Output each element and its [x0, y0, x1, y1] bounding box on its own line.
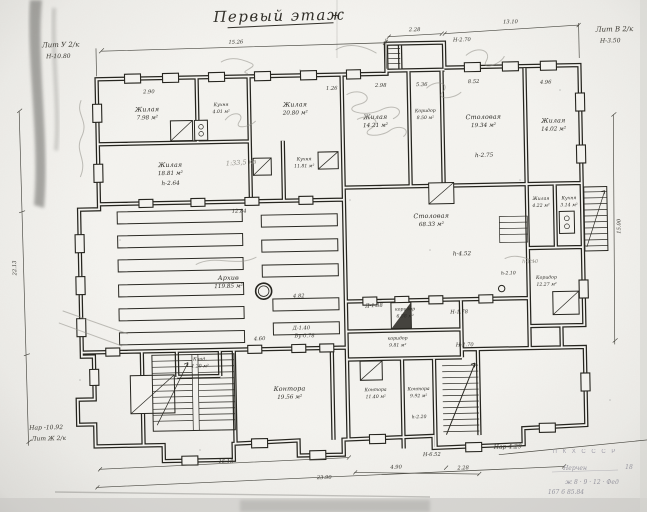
room-area: 8.50 м² [417, 115, 435, 121]
room-note: h-4.52 [453, 251, 472, 257]
room-area: 4.01 м² [211, 109, 230, 115]
dim-bottom-1: 15.18 [218, 459, 234, 465]
room-area: 7.98 м² [137, 114, 159, 121]
dim-bottom-3: 4.90 [389, 465, 402, 471]
dim-annex-width: 2.28 [408, 27, 421, 33]
room-label: Контора [363, 387, 387, 393]
room-note: h-2.20 [412, 414, 427, 420]
room-area: 9.81 м² [389, 342, 407, 348]
room-label: Жилая [282, 101, 307, 108]
room-area: 11.81 м² [294, 163, 315, 169]
dim-d7: 4.60 [253, 336, 266, 342]
label-h-top-right: Н-3.50 [599, 37, 621, 44]
room-area: 3.14 м² [560, 202, 578, 208]
label-nar-bottom-left: Нар -10.92 [28, 424, 63, 432]
room-label: Архив [217, 275, 239, 282]
room-area: 12.27 м² [536, 282, 557, 288]
room-area: 6.88 м² [396, 313, 414, 319]
room-label: Контора [273, 385, 306, 393]
dim-left-vertical: 22.13 [12, 260, 18, 277]
label-h-top-left: Н-10.80 [45, 53, 71, 60]
dim-d9: 4.82 [292, 293, 305, 299]
room-label: Кухня [213, 102, 229, 108]
dim-top-right: 13.10 [503, 19, 519, 25]
label-lit-bottom-left: Лит Ж 2/к [30, 435, 66, 443]
label-lit-top-left: Лит У 2/к [41, 41, 80, 50]
room-label: Кухня [296, 156, 312, 162]
room-note: h-2.64 [161, 181, 180, 187]
dim-d12: Д-1.40 [292, 325, 311, 331]
room-label: Жилая [540, 117, 565, 124]
dim-mid-height: Н-2.70 [455, 342, 475, 348]
dim-d5: 4.96 [539, 80, 552, 86]
room-label: Коридор [535, 275, 557, 281]
room-label: Клад. [192, 356, 207, 362]
room-area: 11.40 м² [366, 394, 387, 400]
stamp-number: 18 [625, 464, 633, 471]
dim-d3: 5.36 [416, 82, 428, 88]
room-label: коридор [395, 306, 415, 312]
dim-bottom-2: 23.90 [316, 475, 333, 481]
stamp-org: П К Х С С С Р [553, 449, 618, 455]
dim-annex-height: Н-2.70 [452, 37, 472, 43]
room-area: 19.34 м² [471, 122, 497, 129]
room-label: Кухня [560, 195, 576, 201]
dim-d11: Н-1.78 [449, 309, 469, 315]
dim-top-main: 15.26 [228, 39, 244, 45]
room-area: 20.80 м² [282, 109, 309, 117]
label-lit-top-right: Лит В 2/к [595, 25, 635, 34]
room-area: 9.92 м² [410, 393, 428, 399]
floor-plan-drawing: Первый этаж [0, 0, 647, 512]
room-area: 119.85 м² [214, 283, 244, 291]
room-area: 19.56 м² [277, 393, 303, 400]
stamp-hand-2: 167 6 85.84 [548, 489, 584, 496]
scanned-floor-plan-page: Первый этаж [0, 0, 647, 512]
dim-d2: 2.98 [374, 83, 387, 89]
room-label: Контора [406, 386, 430, 392]
room-label: Жилая [531, 196, 549, 202]
room-label: Жилая [134, 106, 159, 113]
dim-d13: Ву-0.78 [293, 333, 315, 339]
room-area: 4.22 м² [531, 203, 550, 209]
room-label: коридор [388, 335, 408, 341]
room-label: Коридор [414, 108, 436, 114]
room-area: 68.33 м² [419, 221, 445, 228]
dim-d4: 8.52 [468, 79, 480, 85]
room-label: Столовая [466, 114, 502, 122]
dim-right-vertical: 15.00 [616, 218, 622, 234]
dim-d6: 12.84 [232, 208, 247, 214]
room-note: h-2.75 [475, 153, 494, 159]
room-note: h-2.10 [501, 270, 516, 276]
room-area: 1.20 м² [191, 363, 209, 369]
dim-d10: Д-1.38 [364, 303, 383, 309]
dim-bottom-5: Н-6.52 [422, 452, 441, 458]
room-label: Жилая [157, 162, 182, 169]
dim-d1: 1.26 [326, 86, 338, 92]
stamp-hand-1: ж 8 · 9 · 12 · Фед [565, 479, 619, 486]
room-label: Столовая [413, 213, 449, 221]
dim-d8: 2.90 [142, 89, 155, 95]
room-area: 14.02 м² [541, 125, 567, 132]
room-area: 18.81 м² [158, 170, 184, 177]
label-nar-bottom-right: Нар-4.29 [493, 443, 522, 451]
dim-bottom-4: 2.28 [456, 465, 469, 471]
